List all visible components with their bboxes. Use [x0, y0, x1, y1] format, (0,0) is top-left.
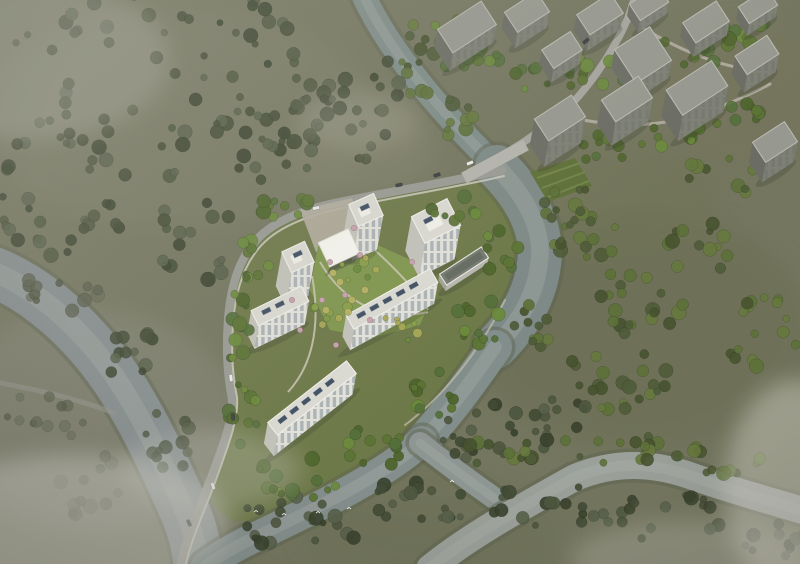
atmosphere-layer — [0, 0, 800, 564]
aerial-site-rendering — [0, 0, 800, 564]
vignette — [0, 0, 800, 564]
rendering-canvas — [0, 0, 800, 564]
